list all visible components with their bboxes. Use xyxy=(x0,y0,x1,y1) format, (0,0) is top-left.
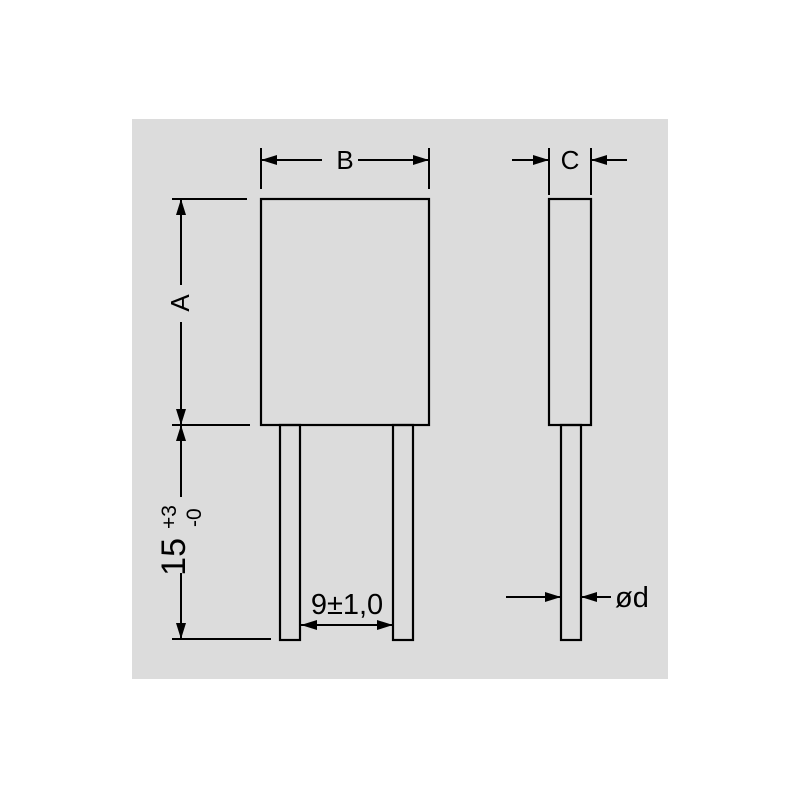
component-dimension-drawing: B C A xyxy=(0,0,800,800)
dim-dia-label: ød xyxy=(615,582,649,614)
page-canvas: B C A xyxy=(0,0,800,800)
dim-leadlen-upper-tol: +3 xyxy=(158,505,181,529)
dim-b-label: B xyxy=(336,145,353,175)
dim-pitch-label: 9±1,0 xyxy=(311,589,383,621)
dim-c-label: C xyxy=(561,145,580,175)
dim-a-label: A xyxy=(165,294,195,312)
dim-leadlen-value: 15 xyxy=(155,538,193,576)
dim-leadlen-lower-tol: -0 xyxy=(183,508,206,527)
